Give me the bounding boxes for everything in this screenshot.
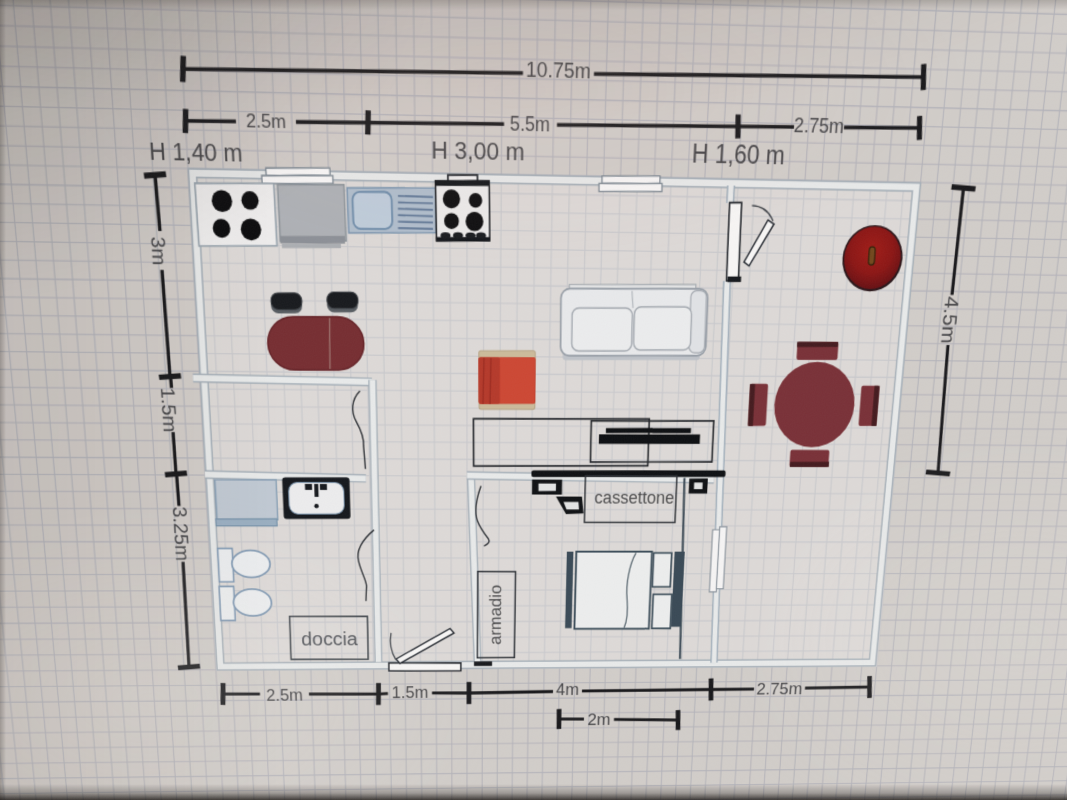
svg-text:H 3,00 m: H 3,00 m <box>431 136 525 166</box>
svg-text:cassettone: cassettone <box>594 488 674 507</box>
svg-text:4.5m: 4.5m <box>937 296 964 344</box>
svg-text:2m: 2m <box>587 710 610 728</box>
svg-text:5.5m: 5.5m <box>510 113 550 136</box>
svg-text:4m: 4m <box>556 682 579 700</box>
svg-text:3m: 3m <box>146 236 169 265</box>
svg-text:1.5m: 1.5m <box>392 684 429 702</box>
svg-text:doccia: doccia <box>301 628 358 650</box>
svg-text:H 1,40 m: H 1,40 m <box>148 138 243 167</box>
svg-text:2.75m: 2.75m <box>793 115 845 138</box>
svg-text:10.75m: 10.75m <box>526 58 591 83</box>
svg-text:2.5m: 2.5m <box>266 686 303 704</box>
svg-text:armadio: armadio <box>487 585 506 645</box>
svg-text:2.75m: 2.75m <box>756 680 803 699</box>
svg-text:3.25m: 3.25m <box>168 507 193 562</box>
svg-text:1.5m: 1.5m <box>156 387 181 432</box>
svg-text:H 1,60 m: H 1,60 m <box>691 141 786 171</box>
svg-text:2.5m: 2.5m <box>246 110 287 132</box>
